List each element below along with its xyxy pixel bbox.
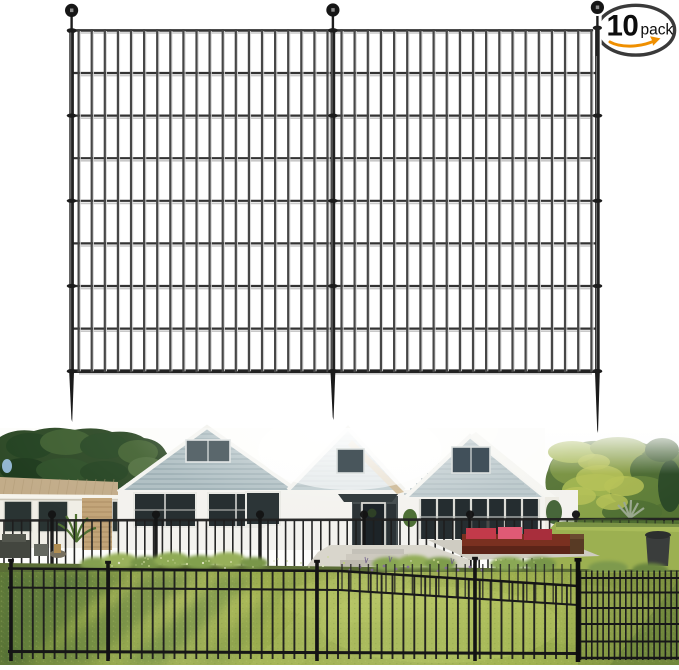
svg-text:10: 10	[607, 10, 639, 43]
svg-text:pack: pack	[641, 22, 674, 39]
